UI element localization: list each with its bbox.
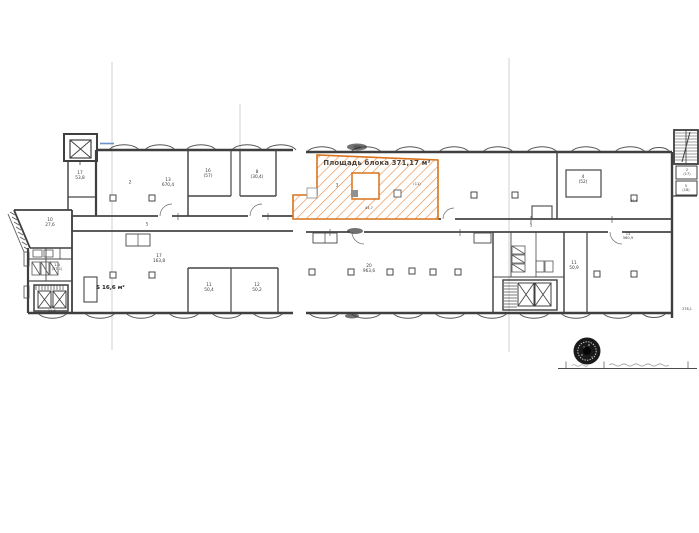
block-wall-notch (307, 188, 317, 198)
right-staircase-icon (672, 130, 698, 196)
illegible-note-squiggle (609, 364, 669, 366)
title-strip (558, 362, 697, 369)
floor-plan-page: Площадь блока 371,17 м² S 16,6 м² 17 53,… (0, 0, 699, 533)
highlighted-block (293, 155, 438, 219)
round-seal-stamp (574, 338, 601, 365)
floor-plan-drawing (0, 0, 699, 533)
elevator-shaft-icon (64, 134, 97, 165)
entrance-ramp-hatch-icon (8, 212, 29, 252)
illegible-signature-squiggle (572, 365, 588, 367)
block-column-open (394, 190, 401, 197)
block-column-filled (351, 190, 358, 197)
toilet-fixtures-central-icon (512, 246, 553, 272)
toilet-fixtures-left-icon (32, 250, 58, 275)
left-staircase-icon (34, 285, 68, 311)
central-staircase-icon (503, 280, 557, 310)
